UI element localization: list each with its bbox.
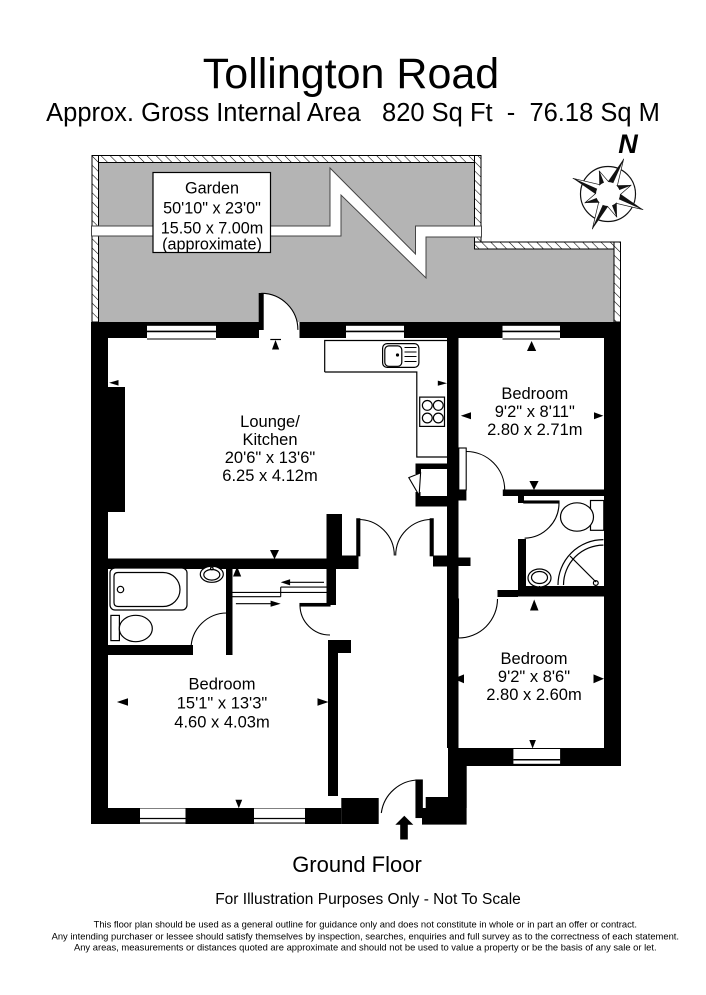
svg-text:Bedroom: Bedroom: [189, 676, 256, 694]
svg-text:Approx. Gross Internal Area: Approx. Gross Internal Area 820 Sq Ft - …: [46, 99, 660, 127]
svg-text:For Illustration Purposes Only: For Illustration Purposes Only - Not To …: [215, 891, 521, 908]
svg-text:Kitchen: Kitchen: [242, 431, 297, 449]
svg-text:(approximate): (approximate): [162, 236, 262, 254]
svg-text:Any areas, measurements or dis: Any areas, measurements or distances quo…: [74, 942, 657, 953]
svg-text:4.60 x 4.03m: 4.60 x 4.03m: [174, 713, 269, 731]
svg-text:6.25 x 4.12m: 6.25 x 4.12m: [222, 467, 317, 485]
svg-text:9'2" x 8'6": 9'2" x 8'6": [498, 668, 570, 686]
svg-text:Bedroom: Bedroom: [501, 650, 568, 668]
svg-text:This floor plan should be used: This floor plan should be used as a gene…: [94, 918, 637, 929]
svg-text:20'6" x 13'6": 20'6" x 13'6": [225, 449, 316, 467]
svg-text:Tollington Road: Tollington Road: [203, 50, 499, 98]
svg-text:15'1" x 13'3": 15'1" x 13'3": [177, 695, 268, 713]
svg-text:2.80 x 2.60m: 2.80 x 2.60m: [486, 686, 581, 704]
svg-text:Garden: Garden: [185, 180, 239, 198]
svg-text:50'10" x 23'0": 50'10" x 23'0": [163, 200, 261, 218]
svg-text:2.80 x 2.71m: 2.80 x 2.71m: [487, 421, 582, 439]
svg-text:N: N: [618, 129, 638, 159]
svg-text:Lounge/: Lounge/: [240, 413, 300, 431]
svg-text:9'2" x 8'11": 9'2" x 8'11": [495, 403, 575, 421]
svg-text:Any intending purchaser or les: Any intending purchaser or lessee should…: [52, 930, 679, 941]
svg-text:Ground Floor: Ground Floor: [292, 852, 422, 877]
svg-text:Bedroom: Bedroom: [501, 385, 568, 403]
